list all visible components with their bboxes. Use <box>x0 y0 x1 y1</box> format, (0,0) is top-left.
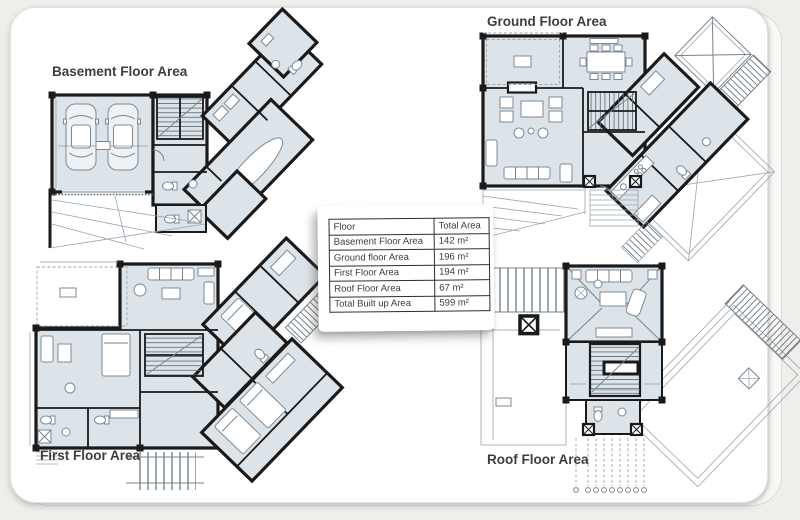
table-header-row: Floor Total Area <box>329 218 489 235</box>
page-background: Basement Floor Area Ground Floor Area Fi… <box>0 0 800 520</box>
roof-left-pergola <box>482 268 566 312</box>
table-row: Basement Floor Area 142 m² <box>329 233 489 250</box>
cell-floor: Ground floor Area <box>329 249 434 266</box>
cell-floor: Basement Floor Area <box>329 234 434 251</box>
cell-area: 142 m² <box>434 233 489 249</box>
basement-floor-plan <box>49 9 322 249</box>
cell-floor: Roof Floor Area <box>330 280 435 297</box>
header-total-area: Total Area <box>434 218 489 234</box>
header-floor: Floor <box>329 218 434 235</box>
first-plan-title: First Floor Area <box>40 448 140 463</box>
roof-staircase <box>590 344 640 396</box>
table-row: First Floor Area 194 m² <box>329 264 489 281</box>
cell-area: 599 m² <box>435 295 490 311</box>
roof-plan-title: Roof Floor Area <box>487 452 589 467</box>
basement-staircase <box>157 97 203 139</box>
car-icon <box>106 104 141 170</box>
ground-staircase <box>588 92 636 130</box>
table-row: Total Built up Area 599 m² <box>330 295 490 312</box>
cell-floor: First Floor Area <box>329 265 434 282</box>
area-summary-table: Floor Total Area Basement Floor Area 142… <box>328 217 490 313</box>
area-table-paper: Floor Total Area Basement Floor Area 142… <box>317 204 494 332</box>
ground-terrace <box>483 188 585 238</box>
open-terrace <box>37 267 127 326</box>
skylight-box <box>520 316 538 334</box>
cell-floor: Total Built up Area <box>330 296 435 313</box>
first-staircase <box>145 334 203 376</box>
roof-right-pergola <box>725 285 800 359</box>
car-icon <box>64 104 99 170</box>
basement-plan-title: Basement Floor Area <box>52 64 187 79</box>
cell-area: 67 m² <box>435 280 490 296</box>
ground-floor-plan <box>480 17 775 263</box>
table-row: Ground floor Area 196 m² <box>329 249 489 266</box>
ground-plan-title: Ground Floor Area <box>487 14 607 29</box>
table-row: Roof Floor Area 67 m² <box>330 280 490 297</box>
cell-area: 196 m² <box>434 249 489 265</box>
cell-area: 194 m² <box>434 264 489 280</box>
